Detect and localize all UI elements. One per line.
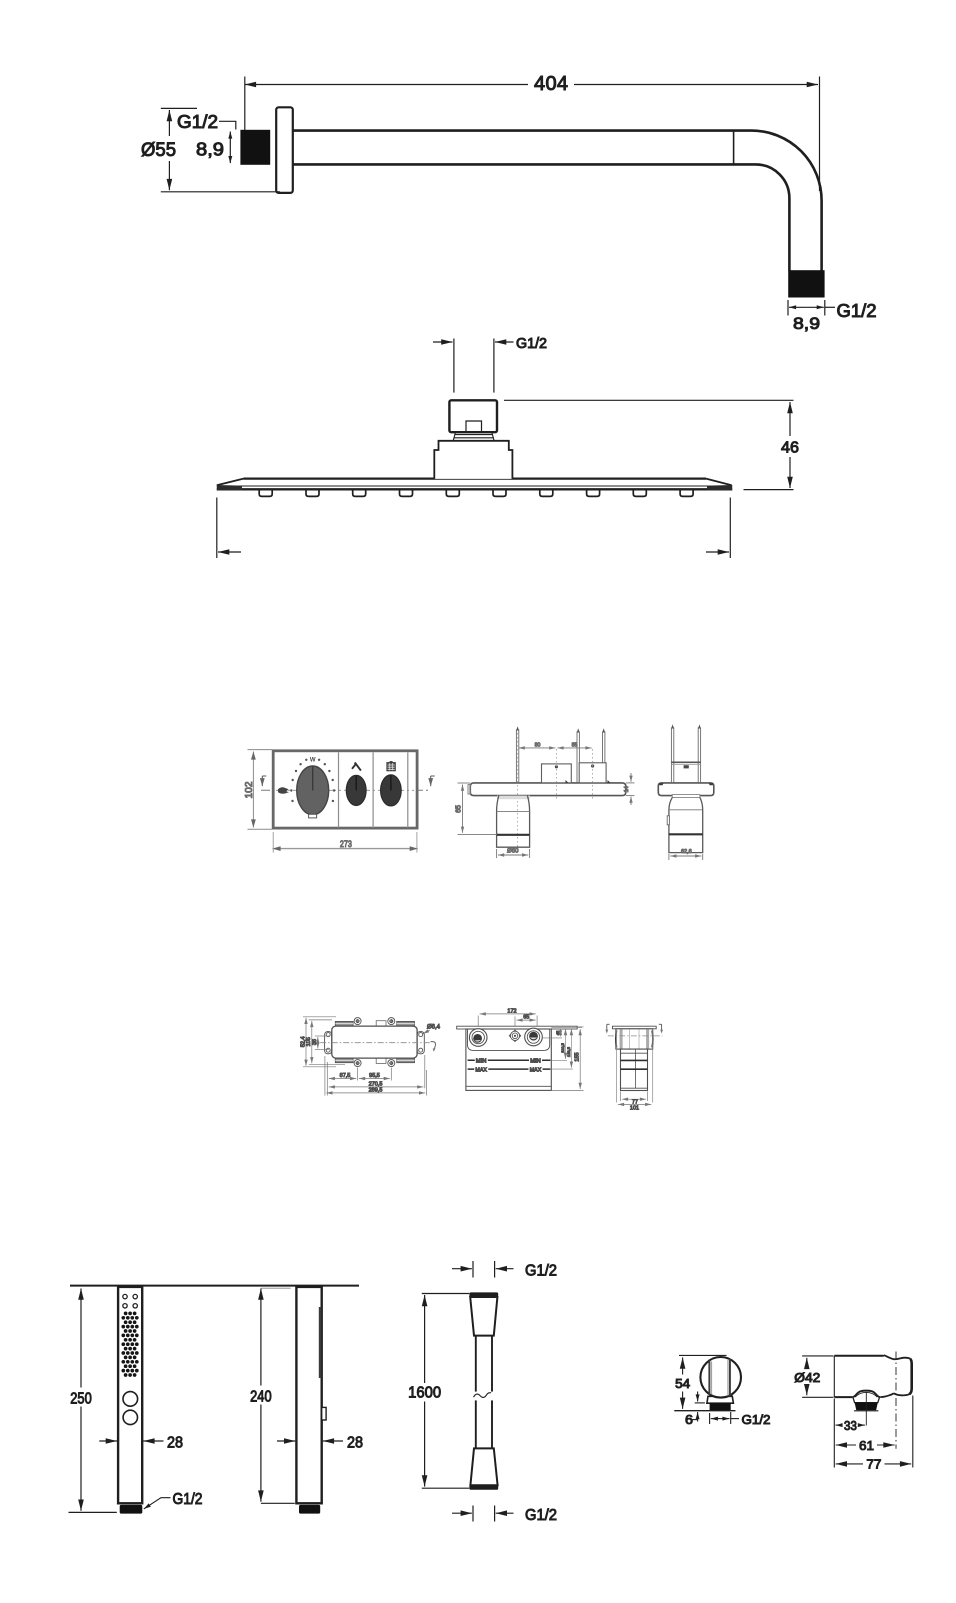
svg-text:65: 65 <box>523 1015 529 1021</box>
svg-text:54: 54 <box>675 1376 690 1391</box>
svg-text:289,5: 289,5 <box>369 1088 383 1094</box>
svg-text:G1/2: G1/2 <box>742 1412 771 1427</box>
svg-text:MIN: MIN <box>476 1058 487 1064</box>
svg-text:28: 28 <box>347 1435 363 1452</box>
svg-text:80: 80 <box>535 742 541 748</box>
svg-text:14: 14 <box>624 786 630 792</box>
svg-text:W: W <box>310 758 316 764</box>
svg-text:240: 240 <box>250 1388 272 1405</box>
svg-text:46: 46 <box>781 440 799 457</box>
svg-text:62,6: 62,6 <box>681 849 692 855</box>
svg-text:Ø42: Ø42 <box>794 1370 820 1385</box>
svg-text:33: 33 <box>844 1418 857 1433</box>
svg-text:110,5: 110,5 <box>560 1042 565 1052</box>
svg-text:102: 102 <box>244 781 255 798</box>
svg-text:MAX: MAX <box>530 1067 542 1073</box>
svg-text:129,5: 129,5 <box>566 1046 571 1057</box>
svg-text:95,5: 95,5 <box>369 1073 380 1079</box>
svg-text:Ø6,4: Ø6,4 <box>427 1025 441 1031</box>
svg-text:MIN: MIN <box>530 1058 541 1064</box>
svg-text:MAX: MAX <box>475 1067 487 1073</box>
svg-text:65: 65 <box>456 805 463 813</box>
svg-text:G1/2: G1/2 <box>516 336 547 352</box>
svg-text:273: 273 <box>340 839 352 849</box>
svg-text:101: 101 <box>630 1105 639 1111</box>
svg-text:8,9: 8,9 <box>793 314 820 333</box>
svg-text:G1/2: G1/2 <box>525 1262 557 1279</box>
svg-text:G1/2: G1/2 <box>525 1507 557 1524</box>
svg-text:172: 172 <box>507 1008 516 1014</box>
svg-text:61: 61 <box>859 1438 874 1453</box>
svg-text:G1/2: G1/2 <box>837 301 877 321</box>
svg-text:8,9: 8,9 <box>196 140 224 160</box>
svg-text:Ø55: Ø55 <box>141 140 176 161</box>
svg-text:G1/2: G1/2 <box>177 112 218 132</box>
svg-text:250: 250 <box>70 1390 92 1407</box>
svg-text:87,5: 87,5 <box>340 1073 351 1079</box>
svg-text:36: 36 <box>312 1039 318 1045</box>
svg-text:Ø60: Ø60 <box>507 849 519 855</box>
svg-text:45: 45 <box>555 1030 560 1035</box>
svg-text:85: 85 <box>572 742 578 748</box>
svg-text:6: 6 <box>685 1412 693 1427</box>
svg-text:404: 404 <box>534 73 568 95</box>
svg-text:77: 77 <box>866 1457 881 1472</box>
svg-text:28: 28 <box>167 1435 183 1452</box>
svg-text:155: 155 <box>575 1052 581 1061</box>
svg-text:1600: 1600 <box>408 1384 441 1401</box>
svg-text:G1/2: G1/2 <box>173 1491 203 1508</box>
